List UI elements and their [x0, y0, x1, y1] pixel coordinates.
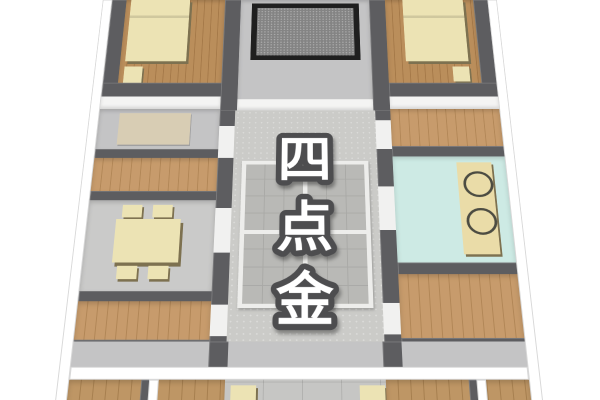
step-left — [100, 96, 221, 109]
hall-upper-strip — [71, 342, 528, 369]
side-room-right-upper — [390, 109, 503, 146]
house-plan: 四 点 金 — [43, 0, 563, 400]
bed-top-right — [402, 0, 468, 61]
entrance-door-mat — [250, 4, 360, 60]
hall-bench-right — [360, 385, 387, 400]
wall-left-3 — [78, 291, 212, 301]
side-room-left-lower — [74, 301, 212, 341]
side-room-right-lower — [398, 274, 524, 340]
hall-front-wall — [69, 367, 529, 380]
nightstand-top-left — [123, 67, 143, 83]
door-opening-left-3 — [210, 305, 228, 337]
door-opening-left-2 — [213, 208, 231, 253]
wall-under-bedroom-top-right — [389, 83, 498, 97]
wall-left-2 — [90, 191, 217, 200]
courtyard-title: 四 点 金 — [229, 124, 382, 340]
dining-table — [112, 219, 181, 263]
dining-chair-3 — [116, 266, 138, 279]
door-opening-right-2 — [378, 186, 396, 230]
title-char-3: 金 — [274, 267, 335, 335]
step-right — [390, 96, 500, 109]
bedroom-bottom-right — [386, 380, 535, 400]
wall-under-bedroom-top-left — [101, 83, 221, 97]
dining-chair-2 — [152, 205, 173, 218]
nightstand-top-right — [453, 67, 471, 82]
door-opening-right-3 — [383, 303, 401, 334]
title-char-2: 点 — [276, 197, 333, 260]
wall-right-2 — [398, 262, 518, 274]
side-room-left-upper — [91, 158, 218, 191]
floorplan-render: 四 点 金 — [0, 0, 600, 400]
dining-chair-4 — [147, 266, 168, 279]
wall-left-1 — [94, 149, 218, 158]
door-opening-right-1 — [375, 120, 392, 149]
rug-anteroom-left — [117, 113, 191, 144]
wall-right-1 — [392, 146, 505, 156]
hall-bench-left — [229, 385, 256, 400]
title-char-1: 四 — [277, 131, 332, 189]
porch-step — [237, 99, 373, 110]
bed-top-left — [125, 0, 190, 61]
dining-chair-1 — [122, 205, 143, 218]
door-opening-left-1 — [218, 126, 235, 158]
